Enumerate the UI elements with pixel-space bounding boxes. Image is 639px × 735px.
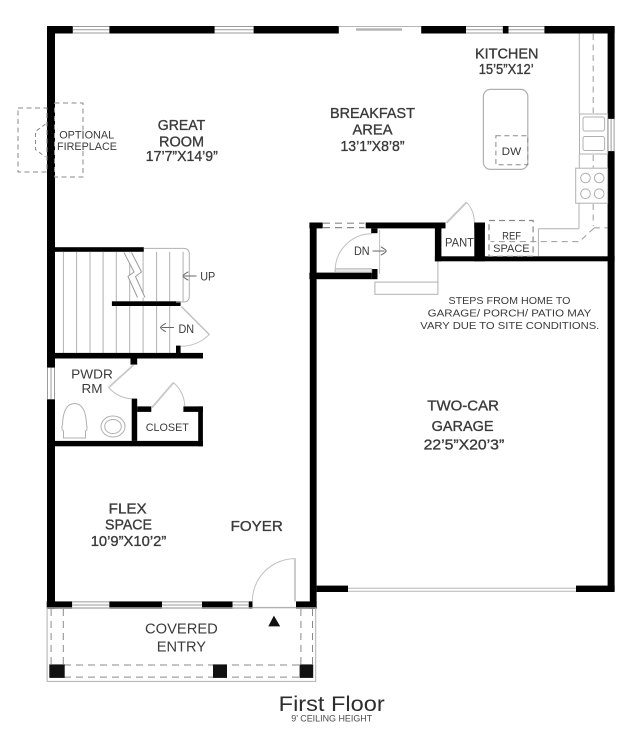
svg-text:COVERED: COVERED bbox=[145, 621, 218, 638]
svg-text:GARAGE/ PORCH/ PATIO MAY: GARAGE/ PORCH/ PATIO MAY bbox=[428, 308, 592, 320]
svg-text:SPACE: SPACE bbox=[493, 243, 530, 255]
svg-text:PANT: PANT bbox=[445, 238, 474, 250]
svg-text:FIREPLACE: FIREPLACE bbox=[57, 141, 117, 153]
svg-text:15’5”X12’: 15’5”X12’ bbox=[479, 61, 534, 78]
svg-text:GARAGE: GARAGE bbox=[432, 418, 494, 435]
svg-text:STEPS FROM HOME TO: STEPS FROM HOME TO bbox=[449, 295, 571, 307]
svg-text:TWO-CAR: TWO-CAR bbox=[427, 398, 499, 415]
svg-text:DW: DW bbox=[502, 146, 522, 158]
svg-text:13’1”X8’8”: 13’1”X8’8” bbox=[341, 138, 405, 155]
svg-text:17’7”X14’9”: 17’7”X14’9” bbox=[146, 148, 218, 165]
svg-text:CLOSET: CLOSET bbox=[146, 422, 189, 434]
svg-text:DN: DN bbox=[178, 322, 194, 336]
svg-text:DN: DN bbox=[354, 244, 370, 258]
svg-text:OPTIONAL: OPTIONAL bbox=[59, 129, 114, 141]
svg-text:22’5”X20’3”: 22’5”X20’3” bbox=[424, 436, 505, 453]
svg-text:BREAKFAST: BREAKFAST bbox=[330, 105, 415, 122]
svg-text:KITCHEN: KITCHEN bbox=[475, 45, 539, 62]
svg-text:GREAT: GREAT bbox=[158, 117, 206, 134]
svg-text:UP: UP bbox=[200, 270, 215, 284]
svg-text:RM: RM bbox=[82, 381, 103, 396]
svg-text:SPACE: SPACE bbox=[105, 517, 152, 534]
svg-text:FOYER: FOYER bbox=[231, 518, 283, 535]
svg-text:PWDR: PWDR bbox=[71, 366, 113, 381]
svg-text:FLEX: FLEX bbox=[109, 500, 147, 517]
svg-text:VARY DUE TO SITE CONDITIONS.: VARY DUE TO SITE CONDITIONS. bbox=[420, 320, 599, 332]
svg-text:ENTRY: ENTRY bbox=[157, 638, 206, 655]
svg-text:10’9”X10’2”: 10’9”X10’2” bbox=[91, 533, 167, 550]
svg-text:REF: REF bbox=[502, 230, 521, 242]
svg-text:9’ CEILING HEIGHT: 9’ CEILING HEIGHT bbox=[291, 713, 372, 723]
svg-text:AREA: AREA bbox=[353, 121, 393, 138]
